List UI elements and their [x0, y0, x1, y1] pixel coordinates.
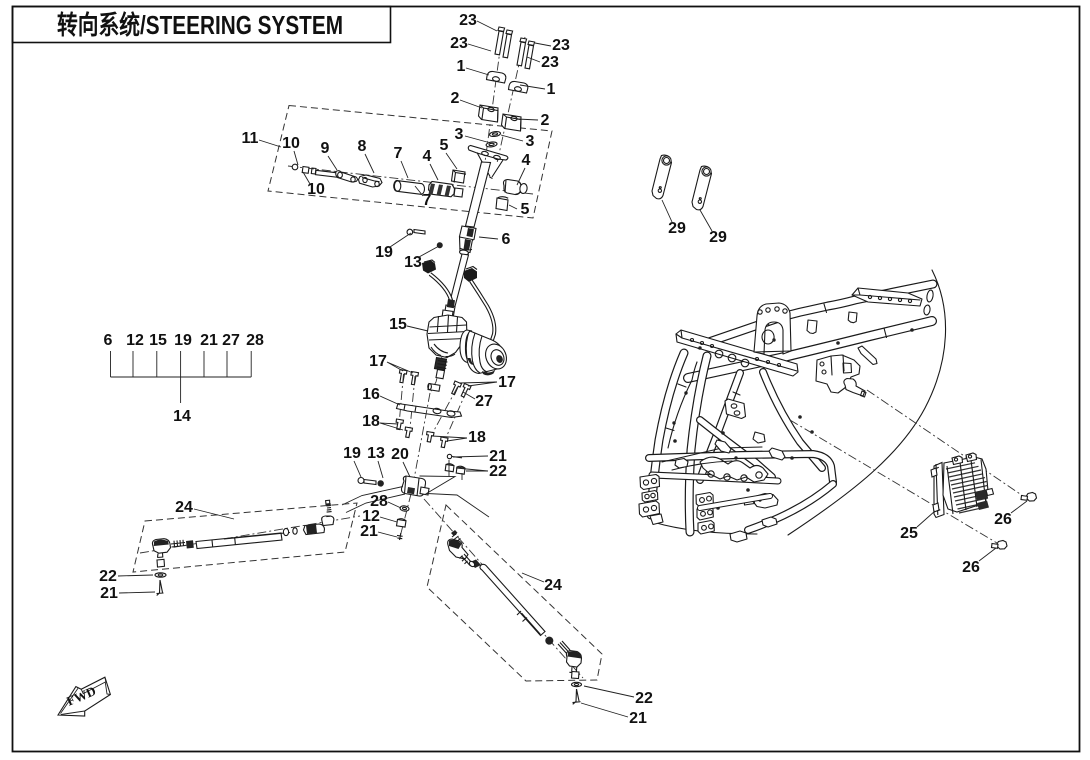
- svg-text:6: 6: [104, 332, 113, 349]
- svg-text:6: 6: [502, 231, 511, 248]
- svg-text:14: 14: [173, 408, 191, 425]
- svg-text:22: 22: [635, 690, 653, 707]
- svg-text:22: 22: [489, 463, 507, 480]
- svg-text:2: 2: [451, 90, 460, 107]
- svg-text:23: 23: [459, 12, 477, 29]
- svg-text:9: 9: [321, 140, 330, 157]
- svg-text:28: 28: [246, 332, 264, 349]
- svg-text:25: 25: [900, 525, 918, 542]
- svg-text:24: 24: [544, 577, 562, 594]
- svg-text:5: 5: [440, 137, 449, 154]
- svg-text:21: 21: [360, 523, 378, 540]
- svg-text:23: 23: [541, 54, 559, 71]
- svg-text:23: 23: [552, 37, 570, 54]
- svg-text:19: 19: [343, 445, 361, 462]
- svg-text:7: 7: [394, 145, 403, 162]
- svg-text:2: 2: [541, 112, 550, 129]
- svg-text:12: 12: [126, 332, 144, 349]
- svg-text:26: 26: [962, 559, 980, 576]
- svg-text:1: 1: [547, 81, 556, 98]
- svg-text:5: 5: [521, 201, 530, 218]
- svg-text:1: 1: [457, 58, 466, 75]
- svg-text:7: 7: [423, 192, 432, 209]
- svg-text:11: 11: [242, 130, 259, 147]
- svg-text:17: 17: [498, 374, 516, 391]
- svg-text:24: 24: [175, 499, 193, 516]
- svg-text:27: 27: [475, 393, 493, 410]
- svg-text:16: 16: [362, 386, 380, 403]
- svg-text:15: 15: [389, 316, 407, 333]
- svg-text:29: 29: [709, 229, 727, 246]
- svg-text:21: 21: [100, 585, 118, 602]
- svg-text:26: 26: [994, 511, 1012, 528]
- svg-text:21: 21: [200, 332, 218, 349]
- svg-text:4: 4: [522, 152, 531, 169]
- svg-text:27: 27: [222, 332, 240, 349]
- svg-text:13: 13: [367, 445, 385, 462]
- svg-text:3: 3: [455, 126, 464, 143]
- svg-text:20: 20: [391, 446, 409, 463]
- svg-text:转向系统/STEERING SYSTEM: 转向系统/STEERING SYSTEM: [57, 10, 343, 40]
- svg-text:22: 22: [99, 568, 117, 585]
- svg-text:15: 15: [149, 332, 167, 349]
- svg-text:19: 19: [174, 332, 192, 349]
- svg-text:29: 29: [668, 220, 686, 237]
- svg-text:10: 10: [282, 135, 300, 152]
- svg-text:17: 17: [369, 353, 387, 370]
- svg-text:18: 18: [468, 429, 486, 446]
- svg-text:18: 18: [362, 413, 380, 430]
- svg-text:3: 3: [526, 133, 535, 150]
- svg-text:23: 23: [450, 35, 468, 52]
- svg-text:4: 4: [423, 148, 432, 165]
- svg-text:21: 21: [629, 710, 647, 727]
- svg-text:8: 8: [358, 138, 367, 155]
